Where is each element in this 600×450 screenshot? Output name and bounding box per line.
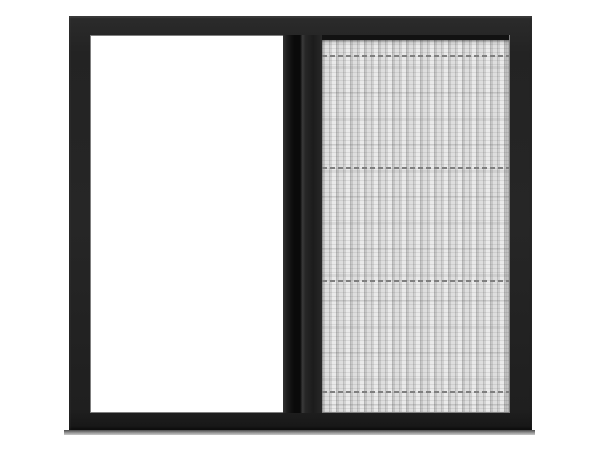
- floor-shadow: [64, 430, 535, 435]
- mesh-seam: [322, 391, 509, 393]
- mesh-seam: [322, 280, 509, 282]
- screen-slider-rail: [283, 35, 322, 413]
- pleated-mesh-panel: [322, 40, 509, 412]
- pleated-screen-window-photo: [0, 0, 600, 450]
- mesh-seam: [322, 55, 509, 57]
- mesh-seam: [322, 167, 509, 169]
